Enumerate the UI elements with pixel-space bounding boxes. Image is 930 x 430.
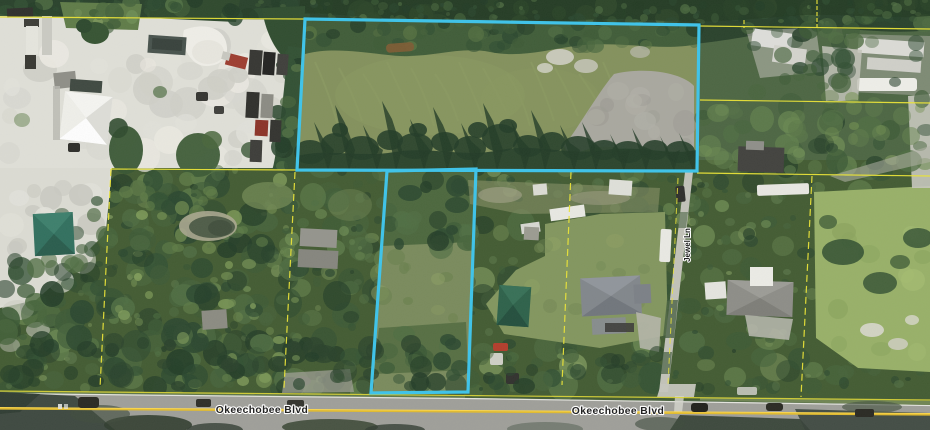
svg-text:Okeechobee Blvd: Okeechobee Blvd [572, 406, 664, 417]
svg-text:Jewel Ln: Jewel Ln [683, 228, 692, 262]
svg-text:Okeechobee Blvd: Okeechobee Blvd [216, 405, 308, 416]
